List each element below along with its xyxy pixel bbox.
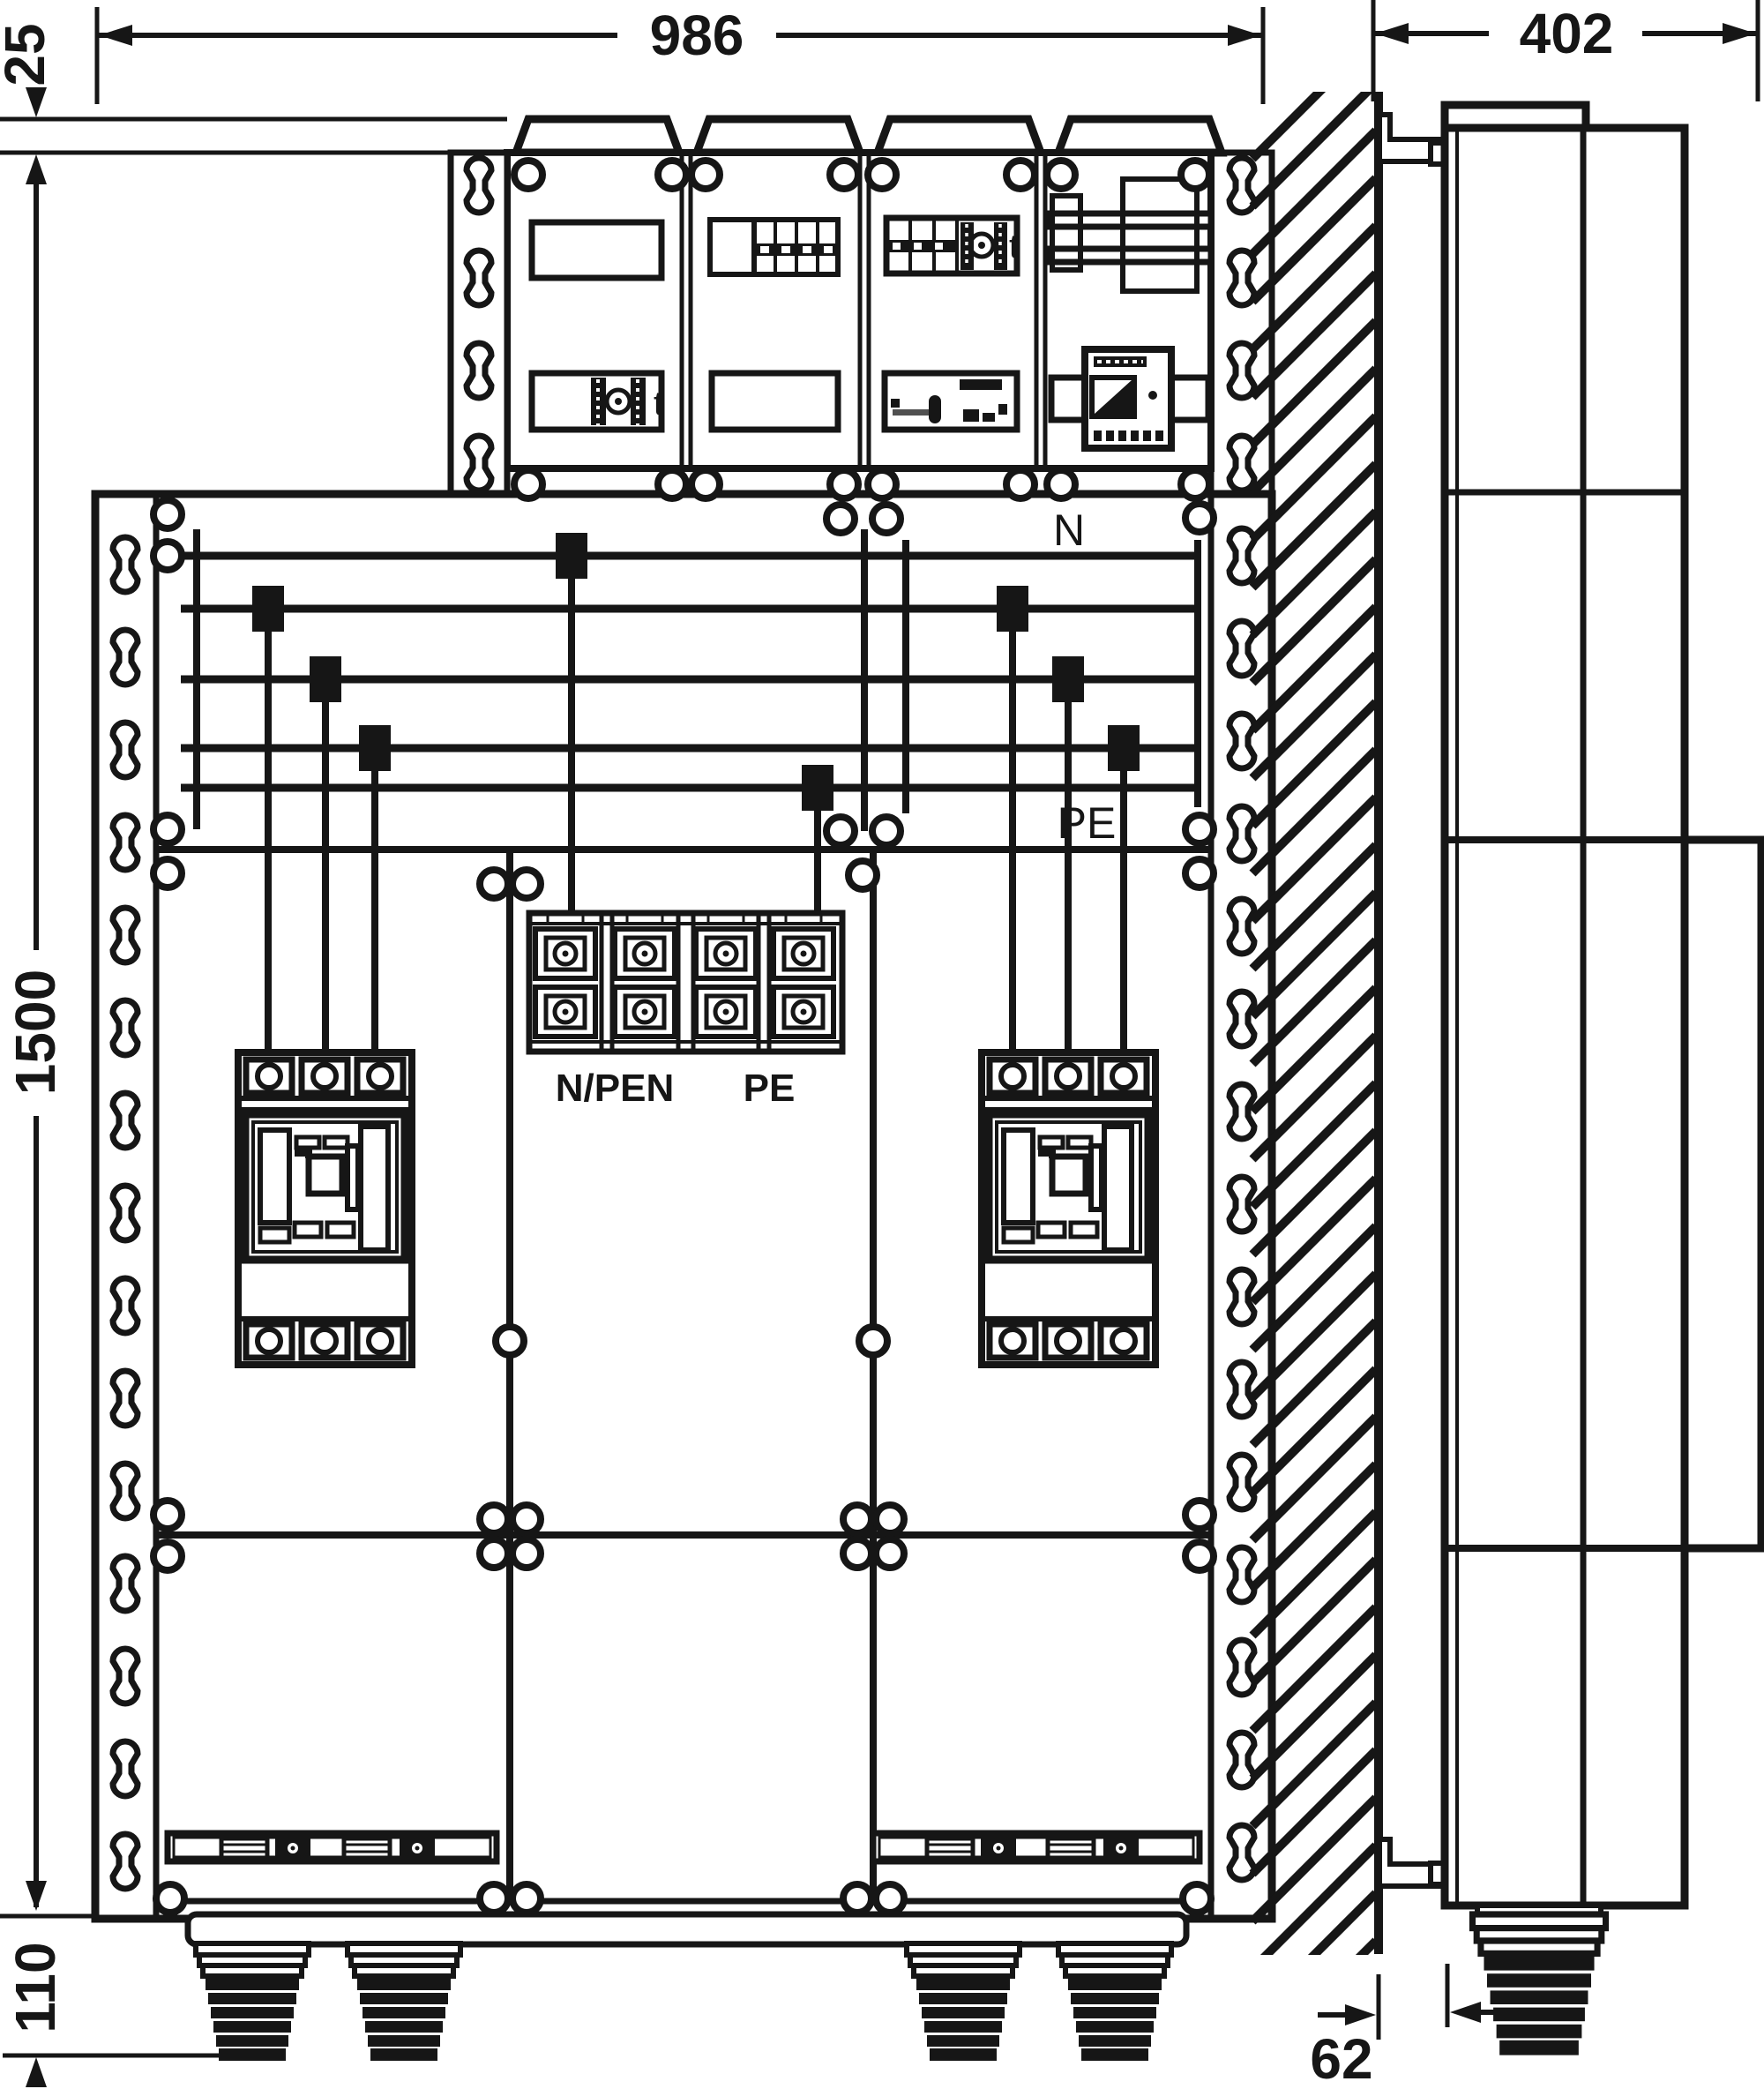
keyhole-slot [1230, 251, 1254, 305]
keyhole-slot [113, 1093, 138, 1148]
dim-label-25: 25 [0, 23, 56, 86]
cable-gland [348, 1943, 460, 2061]
dim-label-62: 62 [1310, 2027, 1372, 2089]
keyhole-slot [1230, 621, 1254, 676]
cable-clamp-strip-right [873, 1833, 1200, 1861]
keyhole-slot [467, 158, 491, 213]
cabinet-top-cap [1445, 105, 1586, 128]
keyhole-slot [467, 436, 491, 490]
cable-clamp-strip-left [168, 1833, 497, 1861]
gland-flange [188, 1914, 1186, 1944]
busbar-label-n: N [1053, 505, 1085, 555]
keyhole-slot [113, 1834, 138, 1889]
cable-gland [907, 1943, 1020, 2061]
dim-label-110: 110 [4, 1942, 67, 2033]
keyhole-slot [113, 815, 138, 870]
cable-gland [196, 1943, 309, 2061]
keyhole-slot [113, 1186, 138, 1240]
timer-label-a: t [654, 386, 663, 423]
keyhole-slot [467, 343, 491, 398]
keyhole-slot [1230, 714, 1254, 768]
busbar-tap-clamp [252, 586, 284, 632]
keyhole-slot [113, 537, 138, 592]
cable-gland [1058, 1943, 1171, 2061]
keyhole-slot [1230, 1640, 1254, 1695]
hanger-bracket [516, 119, 679, 153]
cabinet-profile [1445, 105, 1761, 2055]
keyhole-slot [113, 1556, 138, 1611]
hanger-bracket [697, 119, 860, 153]
terminal-label-pe: PE [744, 1067, 796, 1110]
keyhole-slot [113, 630, 138, 685]
terminal-label-npen: N/PEN [556, 1067, 674, 1110]
keyhole-slot [113, 1278, 138, 1333]
busbar-tap-clamp [359, 725, 391, 771]
keyhole-slot [113, 908, 138, 962]
keyhole-slot [1230, 1084, 1254, 1139]
dimension-62: 62 [1310, 1964, 1513, 2089]
keyhole-slot [467, 251, 491, 305]
wall-bracket-top [1379, 115, 1445, 164]
dimension-402: 402 [1373, 0, 1758, 101]
keyhole-slot [1230, 343, 1254, 398]
busbar-tap-clamp [556, 533, 587, 579]
hanger-bracket [1058, 119, 1222, 153]
keyhole-slot [1230, 806, 1254, 861]
side-view [1252, 35, 1761, 2064]
dimension-1500: 1500 [0, 176, 95, 1916]
dim-label-402: 402 [1520, 2, 1614, 65]
busbar-label-pe: PE [1058, 798, 1117, 848]
keyhole-slot [113, 1000, 138, 1055]
keyhole-slot [113, 1649, 138, 1703]
mccb-right [982, 1052, 1155, 1365]
wall-bracket-bottom [1379, 1839, 1445, 1886]
dimension-986: 986 [97, 4, 1263, 104]
keyhole-slot [1230, 1455, 1254, 1509]
keyhole-slot [113, 1371, 138, 1426]
cabinet-dimension-drawing: 986 402 25 1500 110 62 [0, 0, 1764, 2089]
keyhole-slot [1230, 1362, 1254, 1417]
mccb-left [238, 1052, 412, 1365]
dimension-110: 110 [3, 1942, 225, 2087]
timer-label-b: t [1009, 228, 1019, 266]
dim-label-986: 986 [650, 4, 744, 67]
hanger-bracket [878, 119, 1041, 153]
dimension-25: 25 [0, 23, 507, 184]
keyhole-slot [1230, 436, 1254, 490]
keyhole-slot [1230, 1733, 1254, 1787]
busbar-tap-clamp [997, 586, 1028, 632]
busbar-tap-clamp [1108, 725, 1140, 771]
front-view: t [95, 119, 1272, 2061]
cable-gland-side [1472, 1914, 1605, 2055]
keyhole-slot [1230, 992, 1254, 1046]
busbar-tap-clamp [1052, 656, 1084, 702]
keyhole-slot [113, 723, 138, 777]
busbar-tap-clamp [310, 656, 341, 702]
keyhole-slot [1230, 1547, 1254, 1602]
keyhole-slot [1230, 899, 1254, 954]
keyhole-slot [113, 1741, 138, 1796]
cover-bulge [1685, 840, 1761, 1548]
busbar-tap-clamp [802, 765, 833, 811]
keyhole-slot [1230, 1269, 1254, 1324]
dim-label-1500: 1500 [4, 970, 67, 1095]
keyhole-slot [113, 1464, 138, 1518]
